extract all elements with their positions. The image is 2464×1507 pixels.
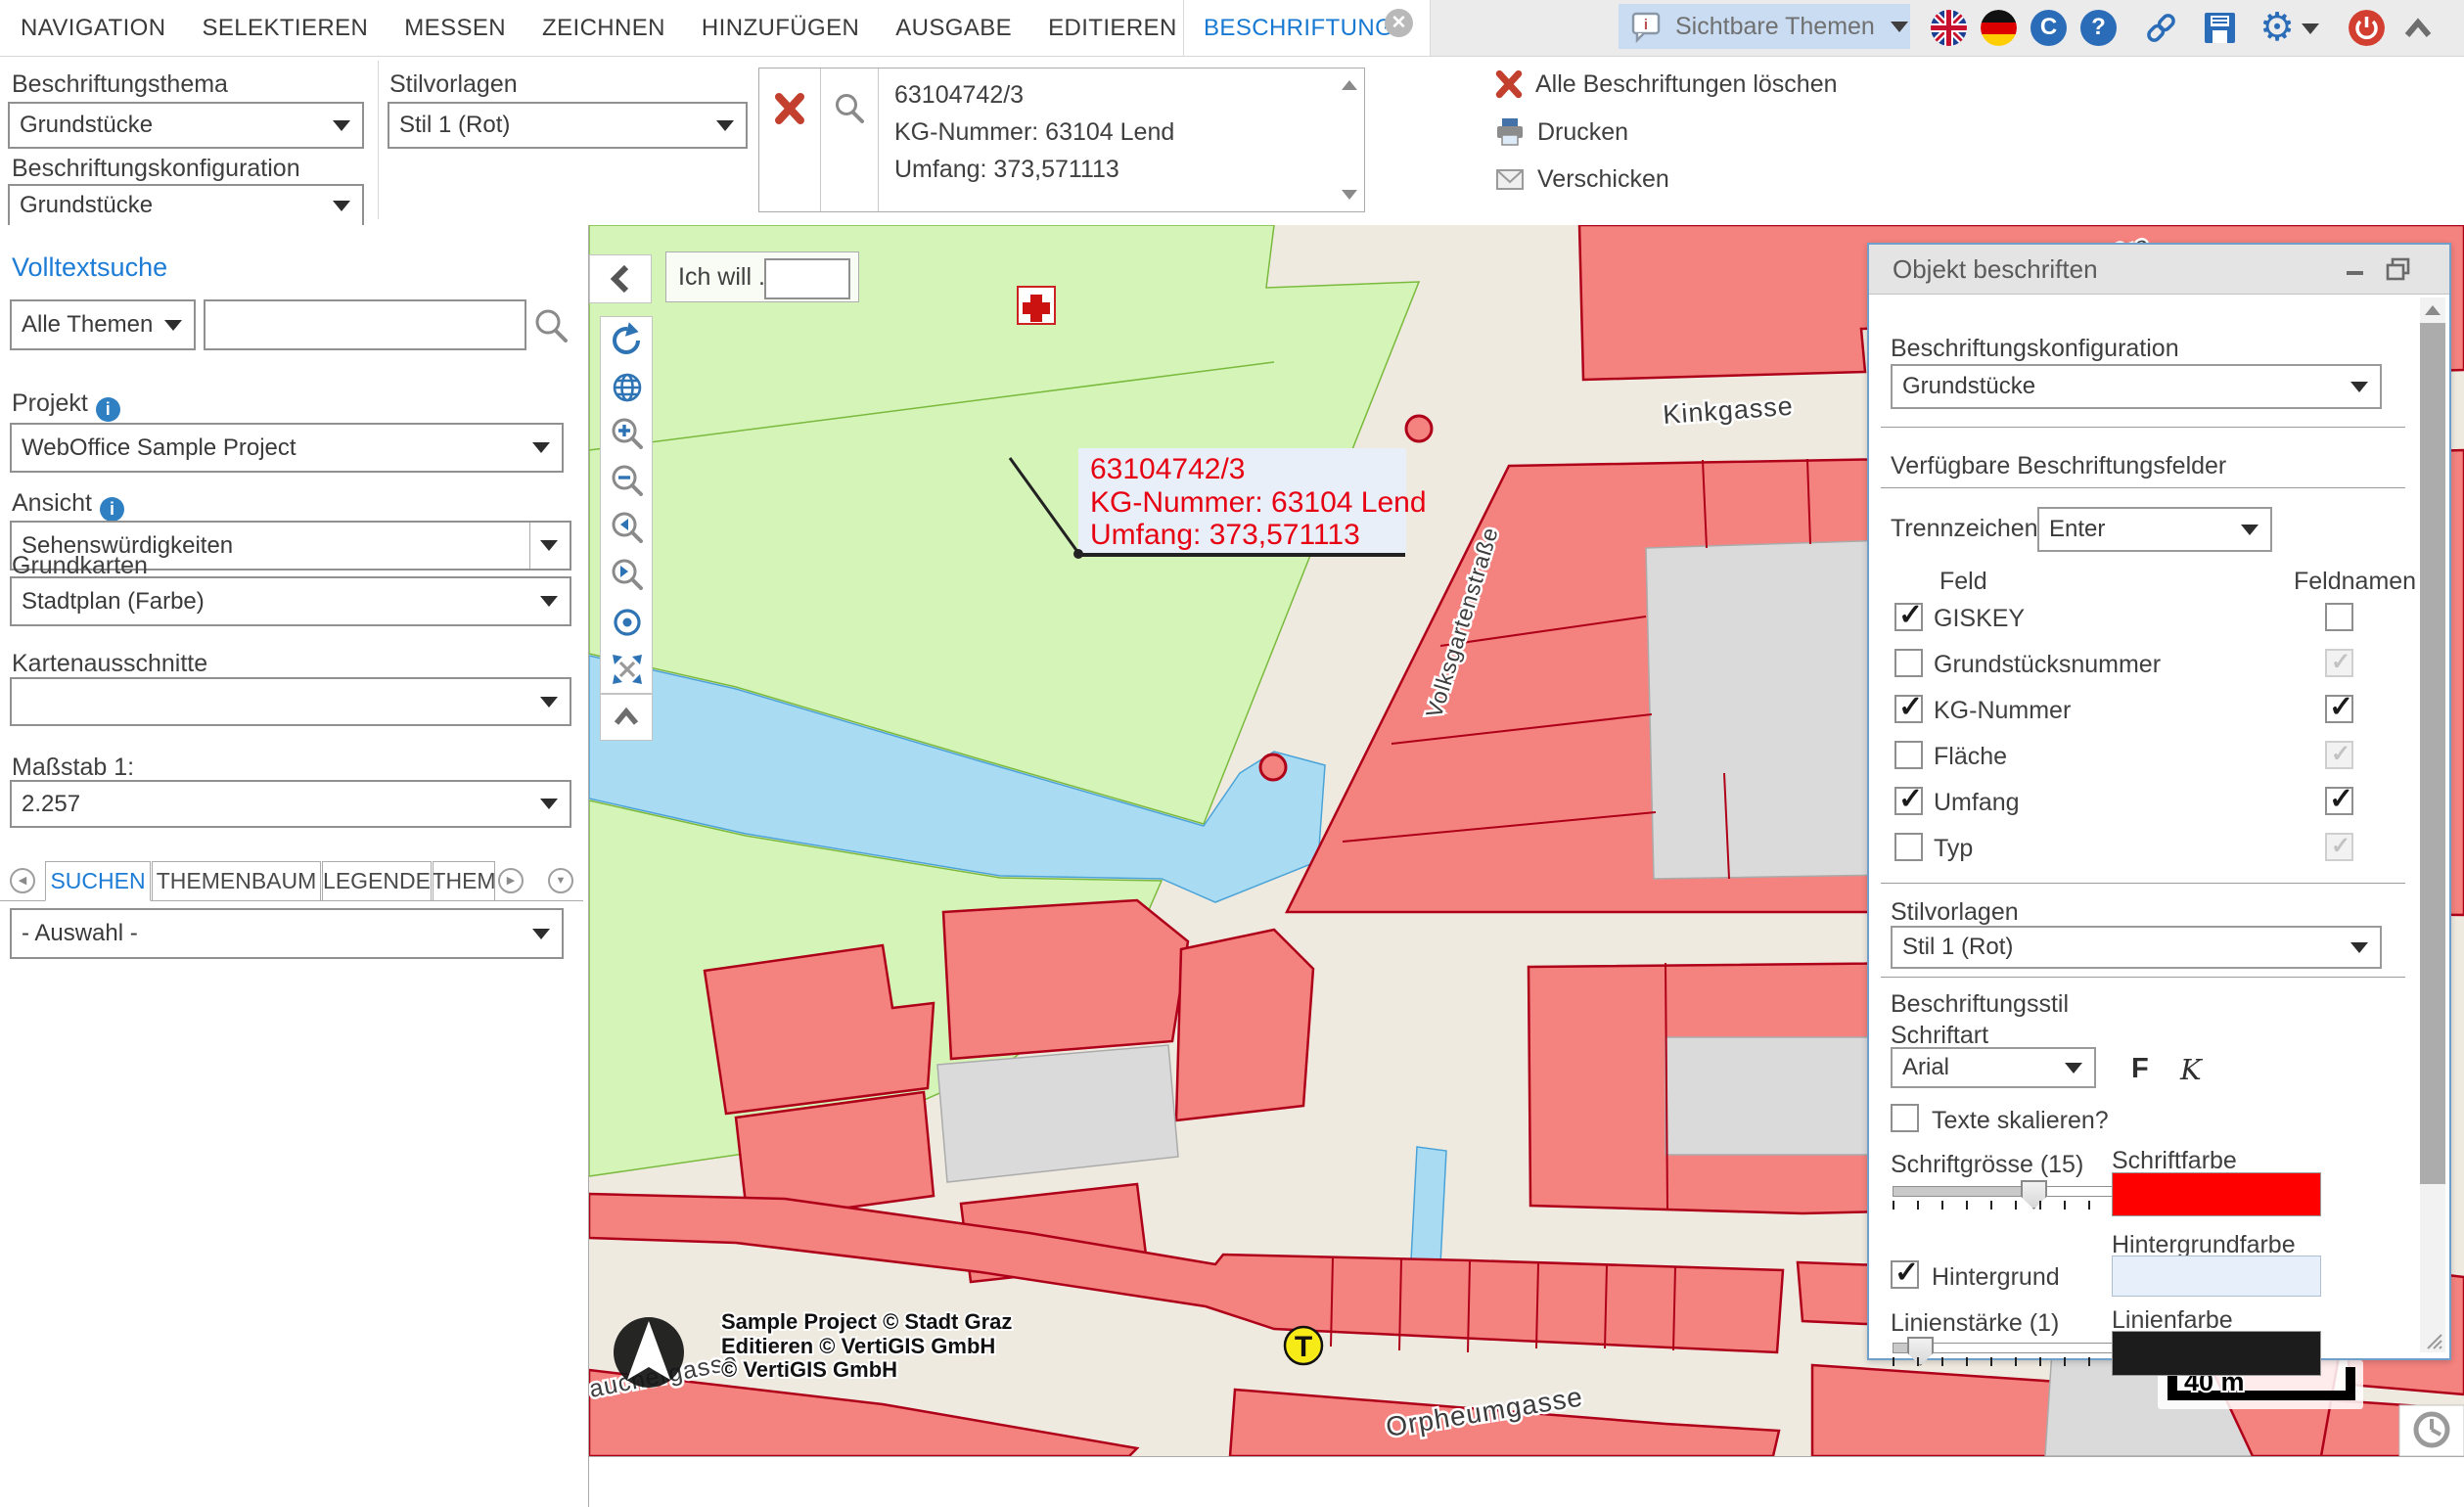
save-icon[interactable] xyxy=(2202,10,2238,46)
map-label-line-3: Umfang: 373,571113 xyxy=(1090,519,1360,551)
top-menu-bar: NAVIGATION SELEKTIEREN MESSEN ZEICHNEN H… xyxy=(0,0,2464,57)
labeling-config-dropdown[interactable]: Grundstücke xyxy=(8,184,364,227)
search-icon[interactable] xyxy=(532,307,570,344)
labeling-config-label: Beschriftungskonfiguration xyxy=(12,155,300,183)
chevron-down-icon xyxy=(540,799,558,809)
chevron-down-icon xyxy=(2065,1063,2082,1073)
field-checkbox-grundstuecksnummer[interactable] xyxy=(1894,649,1923,677)
font-color-label: Schriftfarbe xyxy=(2112,1147,2237,1175)
chevron-down-icon xyxy=(2350,382,2368,392)
svg-text:T: T xyxy=(1295,1331,1312,1363)
info-icon[interactable]: i xyxy=(100,497,124,522)
red-x-icon xyxy=(773,92,806,125)
printer-icon xyxy=(1494,116,1526,148)
divider xyxy=(1881,487,2405,488)
panel-style-templates-label: Stilvorlagen xyxy=(1891,898,2019,927)
menu-item-editieren[interactable]: EDITIEREN xyxy=(1048,15,1177,42)
line-width-label: Linienstärke (1) xyxy=(1891,1309,2059,1338)
style-templates-value: Stil 1 (Rot) xyxy=(399,112,716,139)
panel-title: Objekt beschriften xyxy=(1893,245,2098,294)
separator-dropdown[interactable]: Enter xyxy=(2037,507,2272,552)
panel-labeling-config-dropdown[interactable]: Grundstücke xyxy=(1891,364,2382,409)
result-line-2: KG-Nummer: 63104 Lend xyxy=(894,114,1335,151)
field-checkbox-umfang[interactable] xyxy=(1894,787,1923,815)
style-templates-label: Stilvorlagen xyxy=(389,70,518,99)
font-size-slider[interactable] xyxy=(1893,1186,2137,1197)
map-label-line-2: KG-Nummer: 63104 Lend xyxy=(1090,486,1427,519)
labeling-theme-label: Beschriftungsthema xyxy=(12,70,228,99)
scale-dropdown[interactable]: 2.257 xyxy=(10,780,571,828)
menu-item-navigation[interactable]: NAVIGATION xyxy=(21,15,165,42)
project-label: Projekti xyxy=(12,389,120,422)
left-sidebar: Volltextsuche Alle Themen Projekti WebOf… xyxy=(0,225,589,1507)
chevron-down-icon xyxy=(532,929,550,939)
background-label: Hintergrund xyxy=(1932,1263,2060,1292)
chevron-down-icon xyxy=(540,697,558,708)
language-english-flag-icon[interactable] xyxy=(1931,10,1967,46)
search-theme-value: Alle Themen xyxy=(22,311,164,339)
collapse-tools-button[interactable] xyxy=(600,694,653,741)
italic-button[interactable]: K xyxy=(2180,1053,2202,1086)
poi-dot-icon xyxy=(1260,754,1286,780)
column-field-header: Feld xyxy=(1939,568,1987,596)
pan-extent-button[interactable] xyxy=(601,646,654,693)
copyright-line-1: Sample Project © Stadt Graz xyxy=(721,1309,1012,1334)
line-color-swatch[interactable] xyxy=(2112,1331,2321,1376)
chevron-down-icon xyxy=(164,320,182,331)
chevron-down-icon xyxy=(540,540,558,551)
view-label: Ansichti xyxy=(12,489,124,522)
fieldname-checkbox-typ xyxy=(2325,833,2353,861)
beschriftung-ribbon: Beschriftungsthema Grundstücke Beschrift… xyxy=(0,57,2464,226)
label-style-title: Beschriftungsstil xyxy=(1891,990,2069,1019)
red-x-icon xyxy=(1494,69,1524,99)
view-label-text: Ansicht xyxy=(12,489,92,517)
search-input[interactable] xyxy=(204,299,526,350)
field-label-umfang: Umfang xyxy=(1934,789,2020,817)
remove-label-button[interactable] xyxy=(759,68,821,211)
history-icon[interactable]: C xyxy=(2031,10,2067,46)
svg-text:i: i xyxy=(1644,17,1648,33)
background-checkbox[interactable] xyxy=(1891,1260,1919,1289)
object-label-panel: Objekt beschriften Beschriftungskonfigur… xyxy=(1867,243,2451,1360)
chevron-down-icon xyxy=(333,201,350,211)
resize-grip-icon[interactable] xyxy=(2424,1331,2443,1350)
scroll-down-icon[interactable] xyxy=(1342,190,1357,200)
label-result-box: 63104742/3 KG-Nummer: 63104 Lend Umfang:… xyxy=(758,68,1365,212)
previous-extent-button[interactable] xyxy=(601,505,654,552)
help-icon[interactable]: ? xyxy=(2080,10,2117,46)
map-tools-panel xyxy=(600,316,653,694)
copyright-line-2: Editieren © VertiGIS GmbH xyxy=(721,1334,995,1358)
project-dropdown[interactable]: WebOffice Sample Project xyxy=(10,423,564,473)
labeling-theme-value: Grundstücke xyxy=(20,112,333,139)
tabs-scroll-right-icon[interactable]: ▶ xyxy=(498,868,524,893)
menu-item-hinzufuegen[interactable]: HINZUFÜGEN xyxy=(702,15,859,42)
chevron-down-icon xyxy=(2241,525,2259,535)
panel-scrollbar[interactable] xyxy=(2420,297,2445,1352)
link-icon[interactable] xyxy=(2143,10,2179,46)
map-extracts-label: Kartenausschnitte xyxy=(12,650,207,678)
tab-legende[interactable]: LEGENDE xyxy=(322,861,432,901)
panel-titlebar[interactable]: Objekt beschriften xyxy=(1869,245,2449,295)
scale-label: Maßstab 1: xyxy=(12,753,134,782)
close-tab-icon[interactable]: ✕ xyxy=(1385,9,1413,37)
divider xyxy=(378,61,379,219)
available-fields-title: Verfügbare Beschriftungsfelder xyxy=(1891,452,2226,480)
scale-value: 2.257 xyxy=(22,791,540,818)
field-label-typ: Typ xyxy=(1934,835,1973,863)
fulltext-search-title: Volltextsuche xyxy=(12,252,167,283)
settings-gear-icon[interactable]: ⚙ xyxy=(2257,6,2298,49)
collapse-toolbar-icon[interactable] xyxy=(2399,14,2437,48)
globe-full-extent-button[interactable] xyxy=(601,364,654,411)
fieldname-checkbox-grundstuecksnummer xyxy=(2325,649,2353,677)
logout-power-icon[interactable] xyxy=(2349,10,2385,46)
first-aid-marker-icon xyxy=(1018,287,1055,324)
speech-bubble-info-icon: i xyxy=(1626,7,1665,46)
basemaps-dropdown[interactable]: Stadtplan (Farbe) xyxy=(10,576,571,626)
refresh-map-button[interactable] xyxy=(601,317,654,364)
field-checkbox-typ[interactable] xyxy=(1894,833,1923,861)
tab-beschriftung[interactable]: BESCHRIFTUNG ✕ xyxy=(1183,0,1431,56)
result-line-1: 63104742/3 xyxy=(894,76,1335,114)
chevron-down-icon xyxy=(540,596,558,607)
tabs-more-icon[interactable]: ▼ xyxy=(548,868,573,893)
column-fieldnames-header: Feldnamen xyxy=(2294,568,2416,596)
basemaps-value: Stadtplan (Farbe) xyxy=(22,588,540,616)
tab-suchen[interactable]: SUCHEN xyxy=(45,861,151,901)
poi-dot-icon xyxy=(1406,416,1432,441)
field-checkbox-kg-nummer[interactable] xyxy=(1894,695,1923,723)
print-label: Drucken xyxy=(1537,118,1628,147)
i-want-widget: Ich will ... xyxy=(665,251,859,302)
i-want-input[interactable] xyxy=(764,258,850,299)
divider xyxy=(1881,883,2405,884)
separator-label: Trennzeichen xyxy=(1891,515,2038,543)
selection-value: - Auswahl - xyxy=(22,920,532,947)
field-checkbox-giskey[interactable] xyxy=(1894,603,1923,631)
bold-button[interactable]: F xyxy=(2131,1053,2149,1085)
project-value: WebOffice Sample Project xyxy=(22,434,532,462)
font-size-label: Schriftgrösse (15) xyxy=(1891,1151,2083,1179)
fieldname-checkbox-kg-nummer[interactable] xyxy=(2325,695,2353,723)
minimize-icon[interactable] xyxy=(2347,271,2363,275)
font-color-swatch[interactable] xyxy=(2112,1172,2321,1216)
chevron-down-icon xyxy=(333,120,350,131)
envelope-icon xyxy=(1494,163,1526,195)
chevron-down-icon xyxy=(1891,22,1908,32)
field-label-flaeche: Fläche xyxy=(1934,743,2007,771)
labeling-theme-dropdown[interactable]: Grundstücke xyxy=(8,102,364,149)
background-color-swatch[interactable] xyxy=(2112,1256,2321,1297)
font-value: Arial xyxy=(1902,1054,2065,1081)
field-label-giskey: GISKEY xyxy=(1934,605,2025,633)
font-dropdown[interactable]: Arial xyxy=(1891,1047,2096,1088)
scale-texts-checkbox[interactable] xyxy=(1891,1104,1919,1132)
font-size-slider-ticks xyxy=(1893,1201,2139,1210)
divider xyxy=(1881,427,2405,428)
panel-style-templates-value: Stil 1 (Rot) xyxy=(1902,934,2350,961)
chevron-down-icon xyxy=(2350,942,2368,953)
scroll-up-icon[interactable] xyxy=(2425,305,2441,315)
magnifier-icon xyxy=(833,92,866,125)
menu-item-messen[interactable]: MESSEN xyxy=(404,15,506,42)
delete-all-labels-label: Alle Beschriftungen löschen xyxy=(1535,70,1838,99)
field-checkbox-flaeche[interactable] xyxy=(1894,741,1923,769)
separator-value: Enter xyxy=(2049,516,2241,543)
field-label-kg-nummer: KG-Nummer xyxy=(1934,697,2071,725)
chevron-left-icon xyxy=(606,262,635,296)
center-map-button[interactable] xyxy=(601,599,654,646)
settings-chevron-icon[interactable] xyxy=(2302,23,2319,34)
visible-themes-label: Sichtbare Themen xyxy=(1675,13,1875,41)
panel-labeling-config-label: Beschriftungskonfiguration xyxy=(1891,335,2179,363)
chevron-down-icon xyxy=(716,120,734,131)
fieldname-checkbox-flaeche xyxy=(2325,741,2353,769)
line-width-slider-ticks xyxy=(1893,1357,2139,1366)
sidebar-tabstrip: ◀ SUCHEN THEMENBAUM LEGENDE THEM ▶ ▼ xyxy=(0,861,583,901)
restore-window-icon[interactable] xyxy=(2385,256,2412,282)
chevron-down-icon xyxy=(532,442,550,453)
tab-them-clipped[interactable]: THEM xyxy=(433,861,495,901)
project-label-text: Projekt xyxy=(12,389,88,417)
fieldname-checkbox-giskey[interactable] xyxy=(2325,603,2353,631)
scale-texts-label: Texte skalieren? xyxy=(1932,1107,2109,1135)
north-compass-icon[interactable] xyxy=(614,1317,684,1388)
font-label: Schriftart xyxy=(1891,1022,1988,1050)
zoom-in-button[interactable] xyxy=(601,411,654,458)
chevron-up-icon xyxy=(611,705,642,730)
panel-scrollbar-thumb[interactable] xyxy=(2420,323,2445,1184)
result-line-3: Umfang: 373,571113 xyxy=(894,151,1335,188)
language-german-flag-icon[interactable] xyxy=(1981,10,2017,46)
style-templates-dropdown[interactable]: Stil 1 (Rot) xyxy=(388,102,748,149)
menu-item-selektieren[interactable]: SELEKTIEREN xyxy=(202,15,368,42)
tabs-scroll-left-icon[interactable]: ◀ xyxy=(10,868,35,893)
time-slider-button[interactable] xyxy=(2399,1405,2464,1456)
panel-labeling-config-value: Grundstücke xyxy=(1902,373,2350,400)
main-menu: NAVIGATION SELEKTIEREN MESSEN ZEICHNEN H… xyxy=(21,0,1322,56)
next-extent-button[interactable] xyxy=(601,552,654,599)
delete-all-labels-button[interactable]: Alle Beschriftungen löschen xyxy=(1494,69,1838,99)
copyright-line-3: © VertiGIS GmbH xyxy=(721,1357,897,1382)
zoom-to-label-button[interactable] xyxy=(821,68,879,211)
map-label-line-1: 63104742/3 xyxy=(1090,453,1246,485)
info-icon[interactable]: i xyxy=(96,397,120,422)
weboffice-app: NAVIGATION SELEKTIEREN MESSEN ZEICHNEN H… xyxy=(0,0,2464,1507)
fieldname-checkbox-umfang[interactable] xyxy=(2325,787,2353,815)
menu-item-ausgabe[interactable]: AUSGABE xyxy=(895,15,1012,42)
selection-dropdown[interactable]: - Auswahl - xyxy=(10,908,564,959)
menu-item-zeichnen[interactable]: ZEICHNEN xyxy=(542,15,665,42)
map-extracts-dropdown[interactable] xyxy=(10,677,571,726)
labeling-config-value: Grundstücke xyxy=(20,192,333,219)
print-button[interactable]: Drucken xyxy=(1494,116,1628,148)
label-result-text: 63104742/3 KG-Nummer: 63104 Lend Umfang:… xyxy=(879,68,1335,211)
taxi-marker-icon: T xyxy=(1285,1327,1322,1364)
zoom-out-button[interactable] xyxy=(601,458,654,505)
divider xyxy=(1881,977,2405,978)
send-label: Verschicken xyxy=(1537,165,1669,194)
tab-beschriftung-label: BESCHRIFTUNG xyxy=(1204,0,1393,56)
panel-style-templates-dropdown[interactable]: Stil 1 (Rot) xyxy=(1891,926,2382,969)
collapse-sidebar-button[interactable] xyxy=(589,254,652,303)
field-label-grundstuecksnummer: Grundstücksnummer xyxy=(1934,651,2161,679)
scroll-up-icon[interactable] xyxy=(1342,80,1357,90)
send-button[interactable]: Verschicken xyxy=(1494,163,1669,195)
visible-themes-dropdown[interactable]: i Sichtbare Themen xyxy=(1619,4,1910,49)
tab-themenbaum[interactable]: THEMENBAUM xyxy=(152,861,321,901)
result-scrollbar[interactable] xyxy=(1335,68,1364,211)
search-theme-dropdown[interactable]: Alle Themen xyxy=(10,299,196,350)
